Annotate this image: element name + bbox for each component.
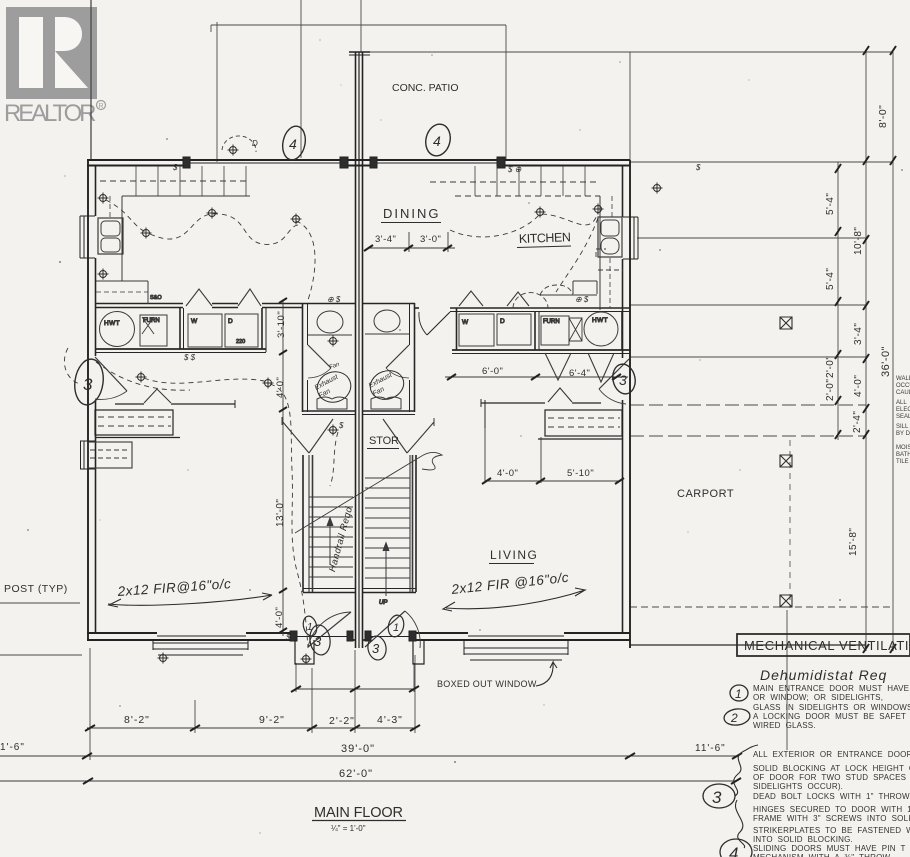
svg-text:WALL: WALL — [896, 376, 910, 382]
svg-text:3'-4": 3'-4" — [853, 323, 864, 345]
svg-text:FURN: FURN — [543, 319, 560, 325]
svg-text:220: 220 — [236, 339, 245, 345]
svg-text:3: 3 — [372, 641, 380, 656]
svg-text:MECHANICAL VENTILATION IS: MECHANICAL VENTILATION IS — [744, 638, 910, 653]
svg-text:4: 4 — [433, 133, 441, 149]
svg-text:5'-4": 5'-4" — [825, 193, 836, 215]
svg-text:¼" = 1'-0": ¼" = 1'-0" — [331, 824, 366, 833]
svg-text:1: 1 — [735, 687, 742, 701]
svg-text:FRAME WITH 3" SCREWS INTO SOLI: FRAME WITH 3" SCREWS INTO SOLID — [753, 814, 910, 823]
svg-text:⊕ $: ⊕ $ — [575, 295, 589, 304]
svg-text:13'-0": 13'-0" — [275, 499, 286, 527]
svg-text:4: 4 — [289, 136, 297, 152]
svg-text:D: D — [252, 139, 258, 148]
svg-text:DEAD BOLT LOCKS WITH 1" THROW.: DEAD BOLT LOCKS WITH 1" THROW. — [753, 792, 910, 801]
svg-text:ELECT: ELECT — [896, 407, 910, 413]
svg-text:HWT: HWT — [104, 320, 120, 327]
svg-text:5'-4": 5'-4" — [825, 268, 836, 290]
svg-text:FURN: FURN — [143, 318, 160, 324]
svg-text:WIRED GLASS.: WIRED GLASS. — [753, 721, 816, 730]
svg-text:OF DOOR FOR TWO STUD SPACES (B: OF DOOR FOR TWO STUD SPACES (B — [753, 773, 910, 782]
svg-text:OCCUR: OCCUR — [896, 383, 910, 389]
svg-text:10'-8": 10'-8" — [853, 227, 864, 255]
svg-text:CONC. PATIO: CONC. PATIO — [392, 82, 460, 94]
svg-text:1: 1 — [393, 622, 399, 634]
svg-text:R: R — [99, 103, 104, 110]
svg-text:STOR: STOR — [369, 435, 399, 447]
svg-text:39'-0": 39'-0" — [341, 743, 375, 755]
svg-text:3'-0": 3'-0" — [420, 234, 441, 245]
svg-text:3'-4": 3'-4" — [375, 234, 396, 245]
svg-text:STRIKERPLATES TO BE FASTENED W: STRIKERPLATES TO BE FASTENED WIT — [753, 826, 910, 835]
svg-text:OR WINDOW; OR SIDELIGHTS,: OR WINDOW; OR SIDELIGHTS, — [753, 693, 883, 702]
svg-text:MAIN FLOOR: MAIN FLOOR — [314, 805, 404, 821]
svg-text:3: 3 — [83, 375, 93, 394]
svg-text:3: 3 — [619, 372, 627, 388]
svg-text:6'-4": 6'-4" — [569, 368, 590, 379]
svg-text:UP: UP — [379, 600, 387, 606]
svg-text:9'-2": 9'-2" — [259, 714, 285, 726]
svg-text:$: $ — [172, 163, 178, 172]
svg-text:SILL: SILL — [896, 424, 909, 430]
svg-text:3'-10": 3'-10" — [276, 311, 287, 338]
svg-text:SLIDING DOORS MUST HAVE PIN T: SLIDING DOORS MUST HAVE PIN T — [753, 844, 906, 853]
svg-text:5'-10": 5'-10" — [567, 468, 594, 479]
svg-text:36'-0": 36'-0" — [880, 346, 892, 377]
svg-text:W: W — [191, 318, 198, 325]
svg-text:MAIN ENTRANCE DOOR MUST HAVE A: MAIN ENTRANCE DOOR MUST HAVE A — [753, 684, 910, 693]
svg-text:BY D: BY D — [896, 431, 910, 437]
svg-text:GLASS IN SIDELIGHTS OR WINDOWS: GLASS IN SIDELIGHTS OR WINDOWS W — [753, 703, 910, 712]
svg-text:DINING: DINING — [383, 206, 440, 221]
svg-text:MOIS: MOIS — [896, 445, 910, 451]
svg-text:4'-0": 4'-0" — [853, 375, 864, 397]
svg-text:MECHANISM WITH A ⅜" THROW.: MECHANISM WITH A ⅜" THROW. — [753, 853, 892, 857]
svg-text:1: 1 — [307, 622, 313, 633]
svg-text:1'-6": 1'-6" — [0, 742, 25, 753]
svg-text:INTO SOLID BLOCKING.: INTO SOLID BLOCKING. — [753, 835, 853, 844]
svg-text:CARPORT: CARPORT — [677, 488, 734, 500]
svg-text:D: D — [228, 318, 233, 325]
svg-text:4: 4 — [729, 844, 738, 857]
svg-text:2'-0": 2'-0" — [825, 379, 836, 401]
svg-text:2'-2": 2'-2" — [329, 715, 355, 727]
svg-text:2'-4": 2'-4" — [852, 411, 863, 433]
svg-text:Dehumidistat Req: Dehumidistat Req — [760, 667, 887, 683]
svg-text:$: $ — [338, 421, 344, 430]
svg-text:8'-2": 8'-2" — [124, 714, 150, 726]
svg-text:KITCHEN: KITCHEN — [519, 230, 571, 246]
svg-text:8'-0": 8'-0" — [877, 105, 889, 128]
svg-text:CAULK: CAULK — [896, 390, 910, 396]
svg-text:POST (TYP): POST (TYP) — [4, 583, 68, 595]
svg-text:4'-0": 4'-0" — [274, 607, 285, 628]
svg-text:ALL: ALL — [896, 400, 907, 406]
svg-text:HWT: HWT — [592, 317, 608, 324]
svg-text:ALL EXTERIOR OR ENTRANCE DOORS: ALL EXTERIOR OR ENTRANCE DOORS F — [753, 750, 910, 759]
svg-text:4'-0": 4'-0" — [497, 468, 518, 479]
svg-text:⊕ $: ⊕ $ — [327, 295, 341, 304]
svg-text:D: D — [500, 318, 505, 325]
svg-text:2: 2 — [730, 711, 738, 725]
svg-text:LIVING: LIVING — [490, 548, 538, 562]
svg-text:3: 3 — [314, 634, 322, 649]
svg-text:$ $: $ $ — [285, 633, 298, 642]
svg-text:3: 3 — [712, 788, 722, 807]
svg-text:SOLID BLOCKING AT LOCK HEIGHT: SOLID BLOCKING AT LOCK HEIGHT O — [753, 764, 910, 773]
svg-text:HINGES SECURED TO DOOR WITH 1": HINGES SECURED TO DOOR WITH 1" SC — [753, 805, 910, 814]
svg-text:6'-0": 6'-0" — [482, 366, 503, 377]
svg-text:$: $ — [695, 163, 701, 172]
svg-text:SIDELIGHTS OCCUR).: SIDELIGHTS OCCUR). — [753, 782, 843, 791]
svg-text:$ $: $ $ — [183, 353, 196, 362]
svg-text:62'-0": 62'-0" — [339, 768, 373, 780]
svg-text:S&O: S&O — [150, 295, 162, 301]
svg-text:4'-3": 4'-3" — [377, 714, 403, 726]
svg-text:BOXED OUT WINDOW: BOXED OUT WINDOW — [437, 679, 537, 689]
svg-text:TILE: TILE — [896, 459, 909, 465]
svg-text:REALTOR: REALTOR — [4, 100, 97, 127]
svg-text:11'-6": 11'-6" — [695, 743, 726, 754]
svg-text:BATH: BATH — [896, 452, 910, 458]
svg-text:W: W — [462, 319, 469, 326]
svg-text:A LOCKING DOOR MUST BE SAFET: A LOCKING DOOR MUST BE SAFET — [753, 712, 906, 721]
svg-text:15'-8": 15'-8" — [848, 528, 859, 556]
svg-text:2'-0": 2'-0" — [825, 356, 836, 378]
svg-text:SEAL: SEAL — [896, 414, 910, 420]
svg-text:$ ⊕: $ ⊕ — [507, 165, 522, 174]
